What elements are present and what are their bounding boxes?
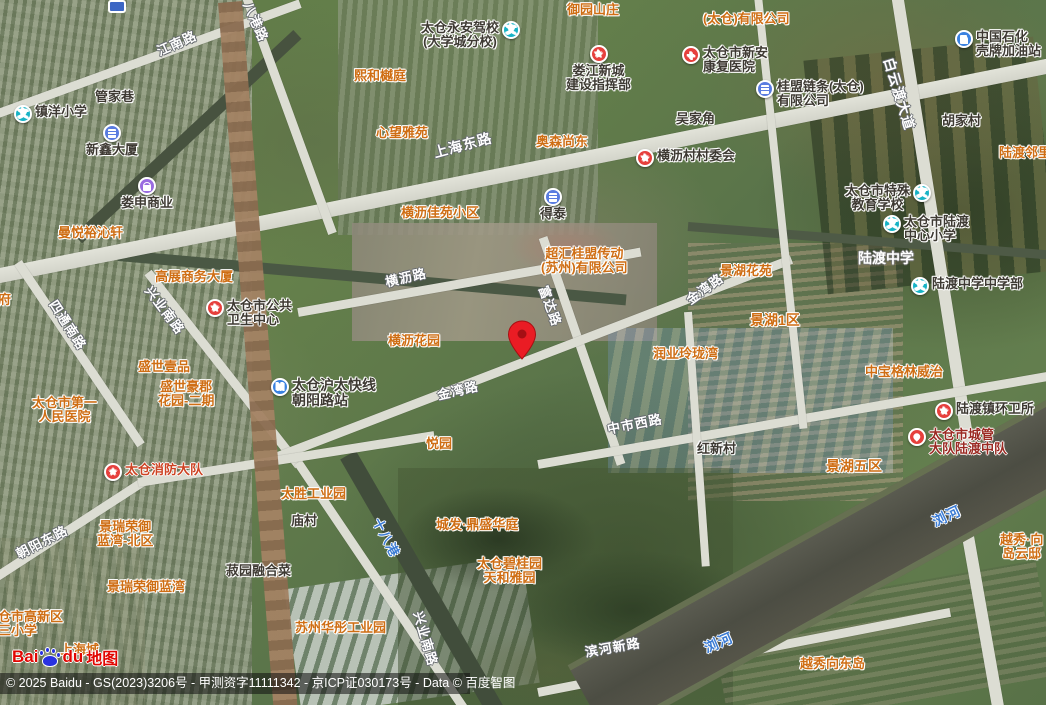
- label-text: 太胜工业园: [281, 487, 346, 501]
- yueyuan[interactable]: 悦园: [426, 437, 452, 451]
- logo-map-word: 地图: [86, 645, 118, 669]
- guanjia-lane[interactable]: 管家巷: [95, 90, 134, 104]
- label-text: 景湖1区: [750, 313, 800, 328]
- label-text: 陆渡中学: [858, 251, 914, 266]
- jinghu-zone-1[interactable]: 景湖1区: [750, 313, 800, 328]
- label-text: 越秀向东岛: [800, 657, 865, 671]
- fire-icon[interactable]: ★: [104, 463, 122, 481]
- gaoxin-third-primary-school[interactable]: 太仓市高新区第三小学: [0, 610, 63, 639]
- label-text: 中宝格林威治: [865, 365, 943, 379]
- detai[interactable]: 得泰: [540, 188, 566, 221]
- chengfa-dingsheng-huating[interactable]: 城发·鼎盛华庭: [436, 518, 518, 532]
- label-text: 八港路: [240, 0, 270, 44]
- label-text: 横沥佳苑小区: [401, 206, 479, 220]
- star-icon[interactable]: ★: [636, 149, 654, 167]
- map-canvas[interactable]: 江南路八港路上海东路白云渡大道四通南路兴业南路横沥路富达路金湾路金湾路中市西路朝…: [0, 0, 1046, 705]
- label-text: 熙和樾庭: [354, 69, 406, 83]
- label-text: 十八港: [369, 516, 401, 560]
- label-text: 管家巷: [95, 90, 134, 104]
- label-text: 娄江新城建设指挥部: [566, 64, 631, 93]
- building-icon[interactable]: [103, 124, 121, 142]
- label-text: 江南路: [155, 29, 199, 59]
- label-text: 陆渡中学中学部: [932, 277, 1023, 291]
- red-pin-icon: [507, 320, 537, 360]
- fu-partial-label[interactable]: 府: [0, 293, 11, 307]
- chaohui-guimeng-company[interactable]: 超汇桂盟传动(苏州)有限公司: [541, 247, 628, 276]
- label-text: 心望雅苑: [376, 126, 428, 140]
- jingrui-lanwan[interactable]: 景瑞荣御蓝湾: [107, 580, 185, 594]
- taicang-fire-brigade[interactable]: ★太仓消防大队: [104, 463, 203, 481]
- miao-village[interactable]: 庙村: [291, 514, 317, 528]
- taicang-first-hospital[interactable]: 太仓市第一人民医院: [32, 396, 97, 425]
- label-text: 镇洋小学: [35, 105, 87, 119]
- label-text: 太仓市第一人民医院: [32, 396, 97, 425]
- xihe-yueting[interactable]: 熙和樾庭: [354, 69, 406, 83]
- chaoyang-east-road-label: 朝阳东路: [14, 524, 70, 562]
- ludu-middle-school-area: 陆渡中学: [858, 251, 914, 266]
- metro-icon[interactable]: M: [271, 378, 289, 396]
- runye-linglongwan[interactable]: 润业玲珑湾: [653, 347, 718, 361]
- star-icon[interactable]: ★: [206, 299, 224, 317]
- hengli-jiayuan-block[interactable]: 横沥佳苑小区: [401, 206, 479, 220]
- xingye-south-road-label: 兴业南路: [142, 284, 187, 337]
- sitong-south-road-label: 四通南路: [46, 298, 88, 353]
- label-text: 朝阳东路: [14, 524, 70, 562]
- logo-du-text: du: [62, 647, 83, 667]
- label-text: 太仓市特殊教育学校: [845, 184, 910, 213]
- yuexiu-xiangdongdao[interactable]: 越秀向东岛: [800, 657, 865, 671]
- manyue-yuqinxuan[interactable]: 曼悦裕沁轩: [58, 226, 123, 240]
- ludu-linli[interactable]: 陆渡邻里: [999, 146, 1046, 160]
- label-text: 娄申商业: [121, 196, 173, 210]
- label-text: 苏州华彤工业园: [295, 621, 386, 635]
- label-text: 金湾路: [436, 380, 480, 403]
- shanghai-east-road-label: 上海东路: [432, 130, 494, 160]
- label-text: 太仓市城管大队陆渡中队: [929, 428, 1007, 457]
- label-text: 超汇桂盟传动(苏州)有限公司: [541, 247, 628, 276]
- label-text: 得泰: [540, 207, 566, 221]
- label-text: 上海东路: [432, 130, 494, 160]
- label-text: 吴家角: [676, 112, 715, 126]
- label-text: 新鑫大厦: [86, 143, 138, 157]
- yuyuan-shanzhuang[interactable]: 御园山庄: [567, 3, 619, 17]
- label-text: 太仓市陆渡中心小学: [904, 215, 969, 244]
- hengli-garden[interactable]: 横沥花园: [388, 334, 440, 348]
- label-text: 景湖五区: [826, 459, 882, 474]
- label-text: 太仓碧桂园天和雅园: [477, 557, 542, 586]
- jiangnan-road-label: 江南路: [155, 29, 199, 59]
- baidu-maps-logo: Bai du 地图: [12, 645, 118, 669]
- label-text: 曼悦裕沁轩: [58, 226, 123, 240]
- jingrui-lanwan-north[interactable]: 景瑞荣御蓝湾-北区: [97, 520, 153, 549]
- label-text: 陆渡邻里: [999, 146, 1046, 160]
- ludu-sanitation-office[interactable]: ★陆渡镇环卫所: [935, 402, 1034, 420]
- label-text: 横沥路: [384, 267, 428, 290]
- label-text: 越秀·向岛云邸: [1000, 533, 1043, 562]
- loujiang-new-city-hq[interactable]: ★娄江新城建设指挥部: [566, 45, 631, 93]
- zhongshi-west-road-label: 中市西路: [606, 412, 664, 437]
- label-text: 浏河: [702, 630, 736, 656]
- shuyuan-ronghecai[interactable]: 菽园融合菜: [226, 564, 291, 578]
- label-text: (太仓)有限公司: [703, 12, 790, 26]
- attribution-text: © 2025 Baidu - GS(2023)3206号 - 甲测资字11111…: [6, 676, 515, 690]
- special-education-school[interactable]: 文太仓市特殊教育学校: [845, 184, 931, 213]
- label-text: 润业玲珑湾: [653, 347, 718, 361]
- liuhe-river-east-label: 浏河: [930, 503, 964, 530]
- label-text: 盛世壹品: [138, 360, 190, 374]
- shengshi-haojun-garden[interactable]: 盛世豪郡花园-二期: [158, 380, 214, 409]
- label-text: 盛世豪郡花园-二期: [158, 380, 214, 409]
- guimeng-chain-company[interactable]: 桂盟链条(太仓)有限公司: [756, 80, 864, 109]
- gas-icon[interactable]: [955, 30, 973, 48]
- hengli-road-label: 横沥路: [384, 267, 428, 290]
- baiyundu-avenue-label: 白云渡大道: [880, 56, 917, 132]
- label-text: 兴业南路: [410, 610, 439, 668]
- label-text: 高展商务大厦: [155, 270, 233, 284]
- label-text: 滨河新路: [584, 636, 642, 660]
- xinan-rehab-hospital[interactable]: +太仓市新安康复医院: [682, 46, 768, 75]
- public-health-center[interactable]: ★太仓市公共卫生中心: [206, 299, 292, 328]
- ludu-middle-school-dept[interactable]: 文陆渡中学中学部: [911, 277, 1023, 295]
- label-text: 太仓市公共卫生中心: [227, 299, 292, 328]
- taicang-yongan-driving-school[interactable]: 文太仓永安驾校(大学城分校): [421, 21, 520, 50]
- loushen-commercial[interactable]: 娄申商业: [121, 177, 173, 210]
- label-text: 中市西路: [606, 412, 664, 437]
- school-icon[interactable]: 文: [14, 105, 32, 123]
- xinwang-yayuan[interactable]: 心望雅苑: [376, 126, 428, 140]
- aosen-shangdong[interactable]: 奥森尚东: [536, 135, 588, 149]
- label-text: 太仓永安驾校(大学城分校): [421, 21, 499, 50]
- star-icon[interactable]: ★: [590, 45, 608, 63]
- zhongbao-greenwich[interactable]: 中宝格林威治: [865, 365, 943, 379]
- logo-bai-text: Bai: [12, 647, 38, 667]
- label-text: 胡家村: [942, 114, 981, 128]
- label-text: 府: [0, 293, 11, 307]
- zhenyang-primary-school[interactable]: 文镇洋小学: [14, 105, 87, 123]
- bagang-road-label: 八港路: [240, 0, 270, 44]
- ludu-central-primary-school[interactable]: 文太仓市陆渡中心小学: [883, 215, 969, 244]
- label-text: 富达路: [536, 284, 564, 328]
- label-text: 桂盟链条(太仓)有限公司: [777, 80, 864, 109]
- xingye-south-road-2-label: 兴业南路: [410, 610, 439, 668]
- xinxin-tower[interactable]: 新鑫大厦: [86, 124, 138, 157]
- label-text: 浏河: [930, 503, 964, 530]
- hospital-icon[interactable]: +: [682, 46, 700, 64]
- star-icon[interactable]: ★: [935, 402, 953, 420]
- jinwan-road-west-label: 金湾路: [436, 380, 480, 403]
- label-text: 红新村: [697, 442, 736, 456]
- jinghu-zone-5[interactable]: 景湖五区: [826, 459, 882, 474]
- label-text: 菽园融合菜: [226, 564, 291, 578]
- binhe-new-road-label: 滨河新路: [584, 636, 642, 660]
- suzhou-huatong-industrial-park[interactable]: 苏州华彤工业园: [295, 621, 386, 635]
- label-text: 太仓市新安康复医院: [703, 46, 768, 75]
- label-text: 景瑞荣御蓝湾: [107, 580, 185, 594]
- chengguan-ludu-squadron[interactable]: 太仓市城管大队陆渡中队: [908, 428, 1007, 457]
- label-text: 中国石化壳牌加油站: [976, 30, 1041, 59]
- liuhe-river-west-label: 浏河: [702, 630, 736, 656]
- jinghu-huayuan[interactable]: 景湖花苑: [720, 264, 772, 278]
- school-icon[interactable]: 文: [502, 21, 520, 39]
- label-text: 奥森尚东: [536, 135, 588, 149]
- building-icon[interactable]: [544, 188, 562, 206]
- label-text: 四通南路: [46, 298, 88, 353]
- shengshi-yipin[interactable]: 盛世壹品: [138, 360, 190, 374]
- fuda-road-label: 富达路: [536, 284, 564, 328]
- wujia-jiao[interactable]: 吴家角: [676, 112, 715, 126]
- label-text: 陆渡镇环卫所: [956, 402, 1034, 416]
- hutai-express-chaoyang-station[interactable]: M太仓沪太快线朝阳路站: [271, 378, 376, 409]
- map-attribution: © 2025 Baidu - GS(2023)3206号 - 甲测资字11111…: [0, 673, 470, 694]
- label-text: 兴业南路: [142, 284, 187, 337]
- label-text: 景瑞荣御蓝湾-北区: [97, 520, 153, 549]
- taicang-biguiyuan[interactable]: 太仓碧桂园天和雅园: [477, 557, 542, 586]
- hujia-village[interactable]: 胡家村: [942, 114, 981, 128]
- school-icon[interactable]: 文: [911, 277, 929, 295]
- label-text: 横沥村村委会: [657, 149, 735, 163]
- selected-location-pin[interactable]: [507, 320, 537, 365]
- hengli-village-committee[interactable]: ★横沥村村委会: [636, 149, 735, 167]
- school-icon[interactable]: 文: [913, 184, 931, 202]
- label-text: 悦园: [426, 437, 452, 451]
- building-icon[interactable]: [756, 80, 774, 98]
- label-text: 城发·鼎盛华庭: [436, 518, 518, 532]
- taisheng-industrial-park[interactable]: 太胜工业园: [281, 487, 346, 501]
- hongxin-village[interactable]: 红新村: [697, 442, 736, 456]
- label-text: 太仓消防大队: [125, 463, 203, 477]
- baidu-paw-icon: [39, 647, 61, 668]
- taicang-co-ltd[interactable]: (太仓)有限公司: [703, 12, 790, 26]
- label-text: 庙村: [291, 514, 317, 528]
- gaozhan-business-tower[interactable]: 高展商务大厦: [155, 270, 233, 284]
- label-text: 白云渡大道: [880, 56, 917, 132]
- shibagang-waterway-label: 十八港: [369, 516, 401, 560]
- label-text: 横沥花园: [388, 334, 440, 348]
- yuexiu-daoyundi[interactable]: 越秀·向岛云邸: [1000, 533, 1043, 562]
- shop-icon[interactable]: [138, 177, 156, 195]
- label-text: 太仓沪太快线朝阳路站: [292, 378, 376, 409]
- label-text: 太仓市高新区第三小学: [0, 610, 63, 639]
- label-text: 景湖花苑: [720, 264, 772, 278]
- sinopec-shell-gas-station[interactable]: 中国石化壳牌加油站: [955, 30, 1041, 59]
- redpin-icon[interactable]: [908, 428, 926, 446]
- label-text: 御园山庄: [567, 3, 619, 17]
- school-icon[interactable]: 文: [883, 215, 901, 233]
